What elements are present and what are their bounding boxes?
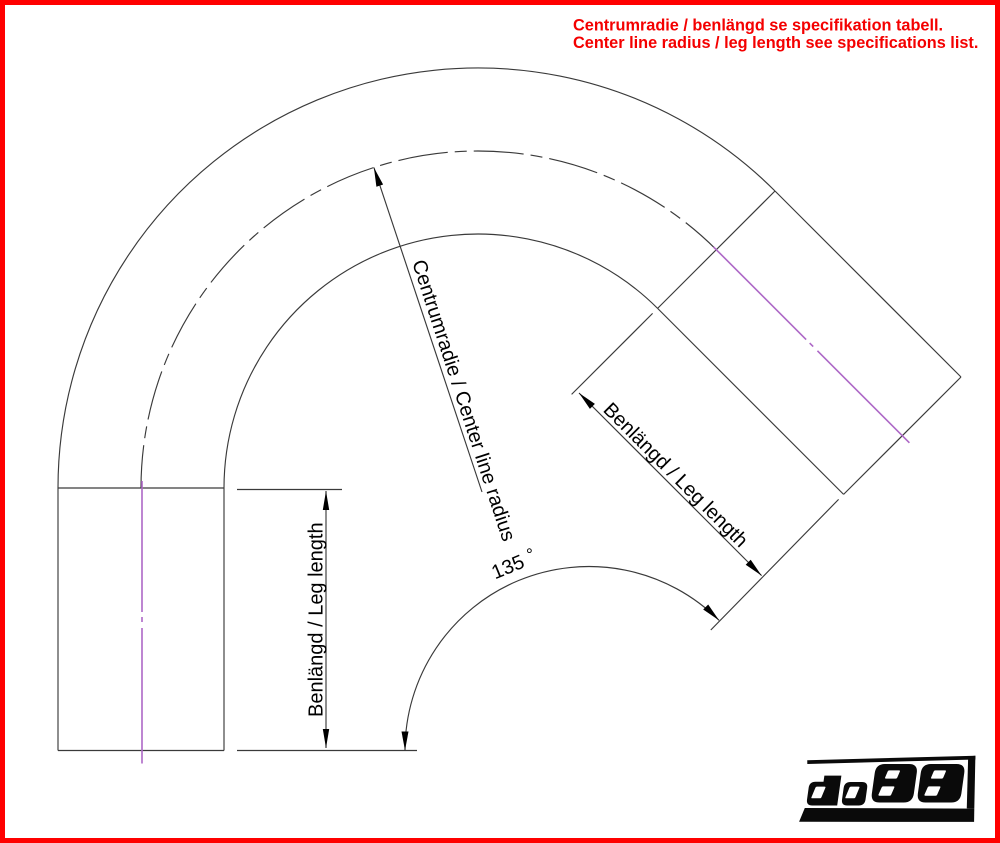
svg-text:Benlängd / Leg length: Benlängd / Leg length <box>306 522 328 717</box>
svg-text:Center line radius / leg lengt: Center line radius / leg length see spec… <box>573 34 978 52</box>
svg-text:Centrumradie / benlängd se spe: Centrumradie / benlängd se specifikation… <box>573 17 943 35</box>
